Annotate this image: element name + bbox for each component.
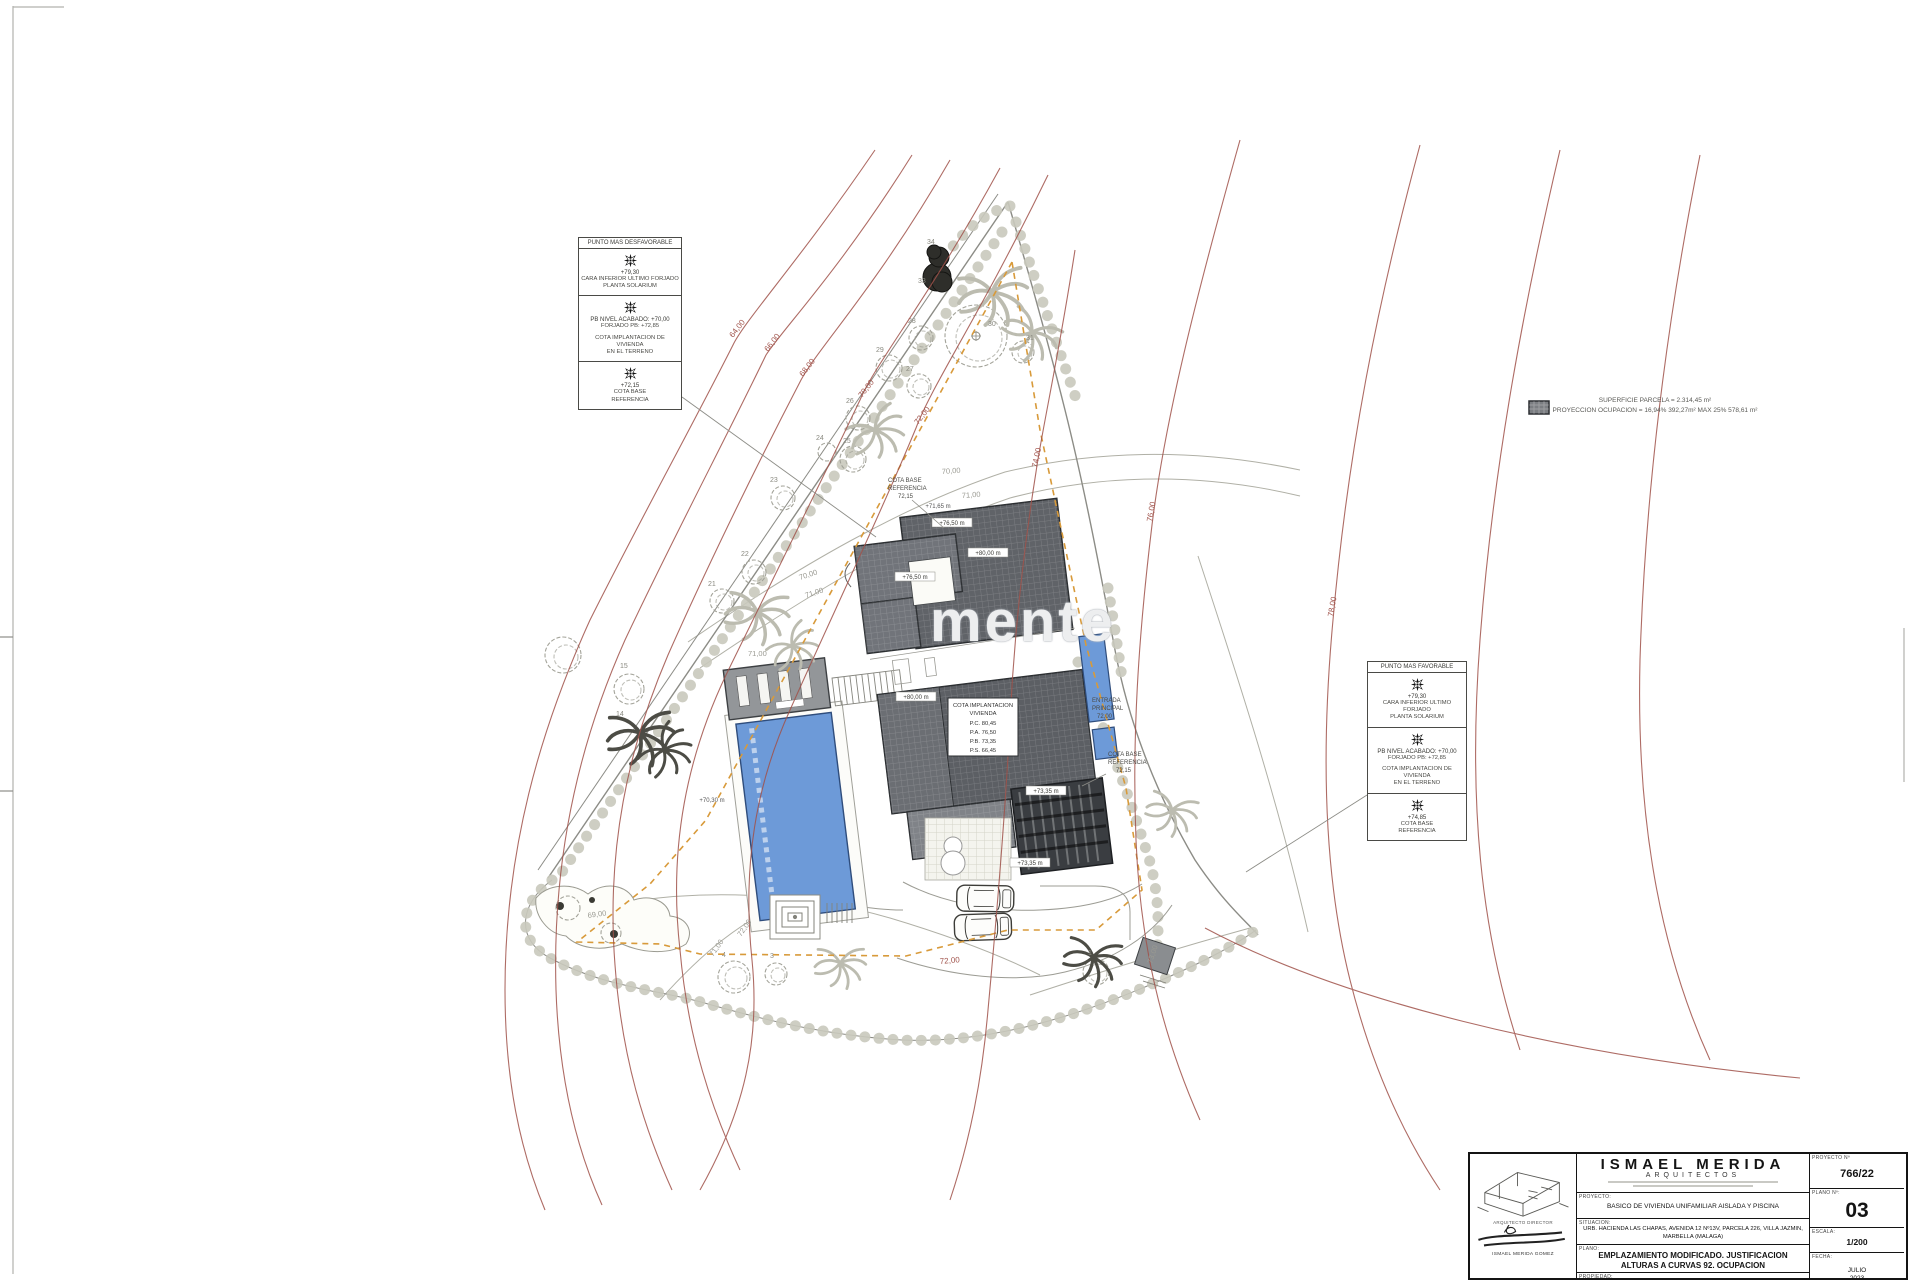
svg-text:+70,30 m: +70,30 m <box>699 798 724 804</box>
legend-right-cell-1: +79,30 CARA INFERIOR ULTIMO FORJADO PLAN… <box>1368 673 1466 728</box>
svg-text:VIVIENDA: VIVIENDA <box>969 711 996 717</box>
compass-icon <box>1410 677 1425 692</box>
svg-text:34: 34 <box>927 239 935 246</box>
occupancy-note: SUPERFICIE PARCELA = 2.314,45 m² PROYECC… <box>1528 396 1760 417</box>
meta-plano-n: PLANO Nº: 03 <box>1810 1189 1904 1228</box>
svg-text:72,00: 72,00 <box>939 955 960 966</box>
svg-text:+80,00 m: +80,00 m <box>903 695 928 701</box>
row-plano: PLANO: EMPLAZAMIENTO MODIFICADO. JUSTIFI… <box>1577 1245 1809 1273</box>
house-levels-box: COTA IMPLANTACION VIVIENDA P.C. 80,45 P.… <box>948 698 1018 756</box>
legend-left-cell-2: PB NIVEL ACABADO: +70,00 FORJADO PB: +72… <box>579 296 681 362</box>
title-block-meta: PROYECTO Nº 766/22 PLANO Nº: 03 ESCALA: … <box>1810 1154 1904 1280</box>
svg-text:24: 24 <box>816 435 824 442</box>
drawing-sheet: 1 3 4 14 15 21 22 23 24 25 26 27 28 29 3… <box>0 0 1920 1280</box>
architect-house-sketch <box>1477 1158 1569 1218</box>
svg-text:70,00: 70,00 <box>942 466 961 476</box>
watermark: mente <box>930 588 1116 655</box>
legend-right-title: PUNTO MAS FAVORABLE <box>1368 662 1466 673</box>
svg-text:72,15: 72,15 <box>898 494 914 500</box>
svg-text:COTA BASE: COTA BASE <box>888 478 922 484</box>
fountain <box>770 895 820 939</box>
svg-text:COTA IMPLANTACION: COTA IMPLANTACION <box>953 703 1013 709</box>
brand-header: ISMAEL MERIDA ARQUITECTOS <box>1577 1154 1809 1193</box>
svg-text:71,00: 71,00 <box>804 586 825 600</box>
architect-name: ISMAEL MERIDA GOMEZ <box>1492 1252 1554 1257</box>
svg-text:31: 31 <box>1026 335 1034 342</box>
legend-punto-mas-favorable: PUNTO MAS FAVORABLE +79,30 CARA INFERIOR… <box>1367 661 1467 841</box>
meta-fecha: FECHA: JULIO 2023 <box>1810 1253 1904 1280</box>
svg-text:+73,35 m: +73,35 m <box>1017 861 1042 867</box>
svg-text:COTA BASE: COTA BASE <box>1108 752 1142 758</box>
svg-text:15: 15 <box>620 663 628 670</box>
svg-text:71,00: 71,00 <box>962 490 981 500</box>
compass-icon <box>1410 798 1425 813</box>
svg-text:+76,50 m: +76,50 m <box>939 521 964 527</box>
meta-escala: ESCALA: 1/200 <box>1810 1228 1904 1253</box>
legend-left-title: PUNTO MAS DESFAVORABLE <box>579 238 681 249</box>
title-block-architect-cell: ARQUITECTO DIRECTOR ISMAEL MERIDA GOMEZ <box>1470 1154 1577 1280</box>
brand-name: ISMAEL MERIDA <box>1577 1156 1809 1173</box>
svg-text:P.C. 80,45: P.C. 80,45 <box>970 721 997 727</box>
legend-right-cell-2: PB NIVEL ACABADO: +70,00 FORJADO PB: +72… <box>1368 728 1466 794</box>
svg-text:22: 22 <box>741 551 749 558</box>
svg-text:P.B. 73,35: P.B. 73,35 <box>970 739 996 745</box>
compass-icon <box>623 366 638 381</box>
occupancy-line2: PROYECCION OCUPACION = 16,94% 392,27m² M… <box>1550 406 1760 416</box>
meta-proyecto-n: PROYECTO Nº 766/22 <box>1810 1154 1904 1189</box>
brand-subtitle: ARQUITECTOS <box>1577 1172 1809 1179</box>
svg-text:PRINCIPAL: PRINCIPAL <box>1092 706 1124 712</box>
svg-text:REFERENCIA: REFERENCIA <box>1108 760 1147 766</box>
svg-text:14: 14 <box>616 711 624 718</box>
svg-text:23: 23 <box>770 477 778 484</box>
svg-text:P.A. 76,50: P.A. 76,50 <box>970 730 996 736</box>
svg-text:71,00: 71,00 <box>748 649 767 658</box>
legend-left-cell-3: +72,15 COTA BASE REFERENCIA <box>579 362 681 408</box>
svg-text:74,00: 74,00 <box>1030 446 1043 468</box>
title-block: ARQUITECTO DIRECTOR ISMAEL MERIDA GOMEZ … <box>1468 1152 1908 1280</box>
address-line-decoration <box>1608 1181 1778 1183</box>
compass-icon <box>623 300 638 315</box>
svg-text:27: 27 <box>906 366 914 373</box>
svg-text:30: 30 <box>988 321 996 328</box>
svg-text:72,15: 72,15 <box>1116 768 1132 774</box>
svg-text:P.S. 66,45: P.S. 66,45 <box>970 748 996 754</box>
compass-icon <box>1410 732 1425 747</box>
occupancy-line1: SUPERFICIE PARCELA = 2.314,45 m² <box>1550 396 1760 406</box>
svg-text:+80,00 m: +80,00 m <box>975 551 1000 557</box>
architect-signature <box>1475 1225 1571 1251</box>
legend-left-cell-1: +79,30 CARA INFERIOR ULTIMO FORJADO PLAN… <box>579 249 681 296</box>
svg-text:72,00: 72,00 <box>1097 714 1113 720</box>
svg-text:29: 29 <box>876 347 884 354</box>
svg-text:76,00: 76,00 <box>1145 501 1157 523</box>
compass-icon <box>623 253 638 268</box>
svg-text:26: 26 <box>846 398 854 405</box>
note-entrada-principal: ENTRADA PRINCIPAL 72,00 <box>1092 698 1124 720</box>
svg-text:1: 1 <box>1088 950 1092 957</box>
svg-text:ENTRADA: ENTRADA <box>1092 698 1121 704</box>
svg-text:33: 33 <box>918 278 926 285</box>
svg-text:64,00: 64,00 <box>727 317 747 339</box>
occupancy-swatch-icon <box>1528 400 1550 415</box>
svg-text:72,00: 72,00 <box>912 404 932 426</box>
row-proyecto: PROYECTO: BASICO DE VIVIENDA UNIFAMILIAR… <box>1577 1193 1809 1219</box>
svg-text:REFERENCIA: REFERENCIA <box>888 486 927 492</box>
title-block-middle: ISMAEL MERIDA ARQUITECTOS PROYECTO: BASI… <box>1577 1154 1810 1280</box>
building-complex <box>703 495 1134 932</box>
svg-text:+76,50 m: +76,50 m <box>902 575 927 581</box>
legend-right-cell-3: +74,85 COTA BASE REFERENCIA <box>1368 794 1466 840</box>
svg-text:78,00: 78,00 <box>1326 596 1338 618</box>
address-line-decoration <box>1633 1185 1753 1187</box>
parked-cars <box>954 885 1014 941</box>
patio-area <box>925 818 1011 880</box>
row-situacion: SITUACION: URB. HACIENDA LAS CHAPAS, AVE… <box>1577 1219 1809 1245</box>
svg-text:70,00: 70,00 <box>856 377 876 399</box>
svg-text:21: 21 <box>708 581 716 588</box>
legend-punto-mas-desfavorable: PUNTO MAS DESFAVORABLE +79,30 CARA INFER… <box>578 237 682 410</box>
row-propiedad: PROPIEDAD: MARTINUS VAN WETTUM <box>1577 1273 1809 1280</box>
svg-text:25: 25 <box>843 438 851 445</box>
svg-text:4: 4 <box>722 952 726 959</box>
svg-text:+73,35 m: +73,35 m <box>1033 789 1058 795</box>
svg-text:+71,65 m: +71,65 m <box>925 504 950 510</box>
svg-text:66,00: 66,00 <box>762 331 782 353</box>
